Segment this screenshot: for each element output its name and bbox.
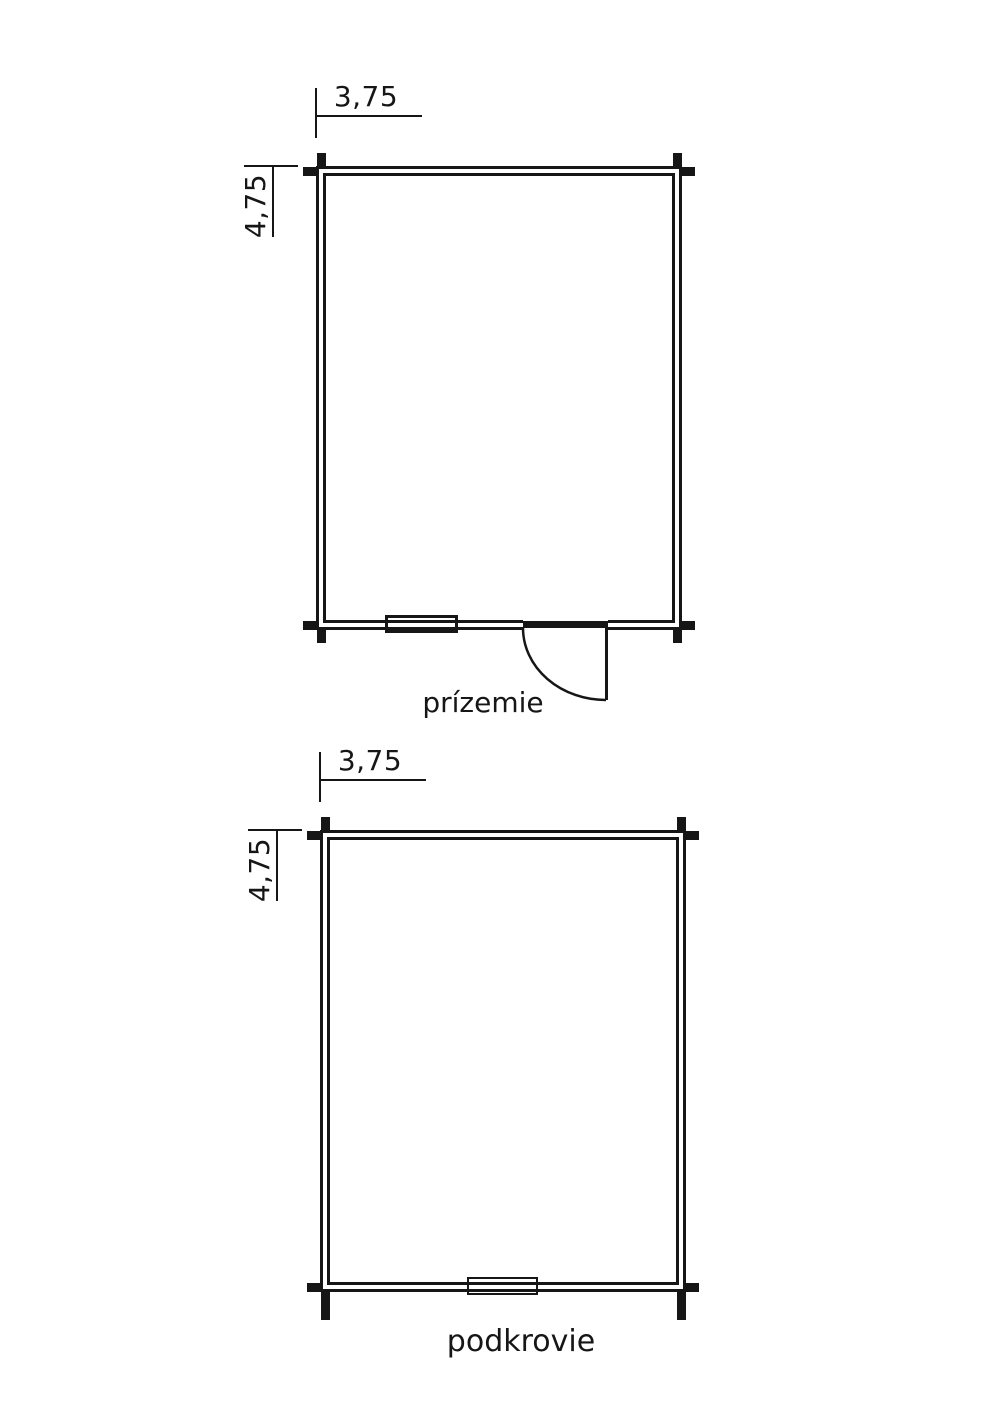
window-symbol bbox=[385, 615, 458, 633]
dimension-depth-label: 4,75 bbox=[241, 156, 271, 256]
dimension-line-depth bbox=[276, 830, 278, 901]
corner-joint-tab bbox=[682, 167, 695, 176]
floorplan-canvas: 3,75 4,75 prízemie 3,75 4,75 podkrovie bbox=[0, 0, 1000, 1415]
corner-joint-tab bbox=[673, 630, 682, 643]
corner-joint-tab bbox=[303, 167, 316, 176]
floor-label: podkrovie bbox=[441, 1324, 601, 1359]
corner-joint-tab bbox=[303, 621, 316, 630]
dimension-line-width bbox=[320, 779, 426, 781]
wall-outline-inner bbox=[327, 837, 679, 1285]
corner-joint-tab bbox=[677, 1292, 686, 1320]
corner-joint-tab bbox=[677, 817, 686, 830]
floorplan-ground-floor: 3,75 4,75 prízemie bbox=[316, 166, 682, 630]
wall-outline-inner bbox=[323, 173, 675, 623]
window-symbol bbox=[467, 1277, 538, 1295]
dimension-line-width bbox=[316, 115, 422, 117]
dimension-depth-label: 4,75 bbox=[245, 820, 275, 920]
corner-joint-tab bbox=[686, 831, 699, 840]
floorplan-attic: 3,75 4,75 podkrovie bbox=[320, 830, 686, 1292]
corner-joint-tab bbox=[307, 831, 320, 840]
corner-joint-tab bbox=[682, 621, 695, 630]
corner-joint-tab bbox=[673, 153, 682, 166]
corner-joint-tab bbox=[317, 153, 326, 166]
dimension-width-label: 3,75 bbox=[316, 82, 416, 112]
corner-joint-tab bbox=[686, 1283, 699, 1292]
dimension-line-depth bbox=[272, 166, 274, 237]
corner-joint-tab bbox=[321, 1292, 330, 1320]
dimension-width-label: 3,75 bbox=[320, 746, 420, 776]
corner-joint-tab bbox=[307, 1283, 320, 1292]
floor-label: prízemie bbox=[403, 686, 563, 719]
corner-joint-tab bbox=[321, 817, 330, 830]
corner-joint-tab bbox=[317, 630, 326, 643]
